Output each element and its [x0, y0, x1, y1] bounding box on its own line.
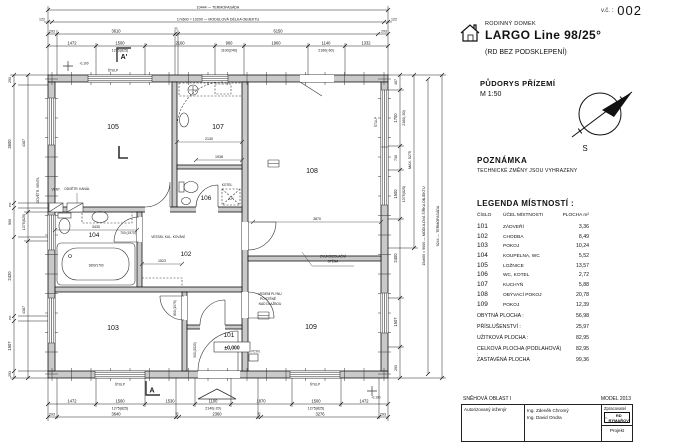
drawing-sheet: 101 102 103 104 105 106 107 108 109 ±0,0… [0, 0, 700, 445]
dim: 1375(825) [22, 214, 26, 230]
dim: 3870 [313, 217, 321, 221]
gasline-label: VEDENÍ PLYNU [258, 292, 282, 296]
chimney-mark [119, 146, 128, 158]
dim: 3600 [7, 139, 12, 149]
plan-annotations: ŠTULP ŠTULP ŠTULP ŠTULP -0,100 -0,100 A'… [35, 54, 381, 400]
note-title: POZNÁMKA [477, 156, 527, 165]
duct-label: ODVĚTR. KANÁL [64, 186, 90, 191]
room-number-105: 105 [107, 124, 119, 131]
vent-valve-label: ODVĚTR. VENTIL [35, 177, 40, 203]
legend-room-area: 12,39 [565, 302, 589, 308]
dim: 150 [8, 315, 12, 320]
dim: 1960 [271, 41, 281, 46]
total-row: OBYTNÁ PLOCHA :56,98 [477, 313, 589, 324]
dim: 2160(-50) [402, 110, 406, 126]
dim: 900 [226, 41, 234, 46]
dim: 293 [49, 413, 55, 417]
legend-rooms: 101ZÁDVEŘÍ3,36102CHODBA8,49103POKOJ10,24… [477, 223, 589, 310]
legend-row: 109POKOJ12,39 [477, 301, 589, 311]
dim: 900 (2020) [193, 342, 197, 357]
boiler-label: KOTEL [222, 183, 233, 187]
dim: 293 [8, 77, 12, 83]
dim: 9244 — TERMOFASÁDA [436, 205, 440, 246]
legend-room-number: 107 [477, 281, 503, 288]
dim: 700 (1970) [120, 231, 135, 235]
legend-row: 106WC, KOTEL2,72 [477, 271, 589, 281]
radiator-108 [268, 160, 279, 167]
stulp-label: ŠTULP [108, 68, 118, 73]
legend-room-area: 20,78 [565, 292, 589, 298]
washer-label: A.P. [228, 197, 234, 201]
soundwall-label: STĚNA [328, 259, 340, 264]
soundwall-label: ZVUKOIZOLAČNÍ [320, 254, 346, 259]
dim: 122 [391, 18, 397, 22]
dim: 1472 [67, 399, 77, 404]
dim: 2130 [205, 137, 213, 141]
engineer-1: Ing. Zdeněk Chromý [527, 407, 599, 414]
room-number-104: 104 [89, 232, 100, 239]
dim: 1332 [361, 41, 371, 46]
dim: MAX. 5275 [408, 151, 412, 169]
floor-plan-drawing: 101 102 103 104 105 106 107 108 109 ±0,0… [0, 0, 455, 445]
legend-room-area: 10,24 [565, 243, 589, 249]
subtitle: (RD BEZ PODSKLEPENÍ) [485, 49, 567, 56]
sheet-number: 002 [617, 3, 642, 18]
hardware-label: VESTAV. KUL. KOVÁNÍ [151, 235, 185, 239]
producer-house-icon: ⌂ [605, 415, 607, 420]
section-label-bottom: A [149, 388, 154, 395]
legend-room-number: 101 [477, 223, 503, 230]
room-number-107: 107 [212, 124, 224, 131]
legend-room-area: 5,52 [565, 253, 589, 259]
legend-col-purpose: ÚČEL MÍSTNOSTI [503, 213, 563, 218]
legend-room-purpose: POKOJ [503, 303, 565, 308]
gasline-label: PO STĚNĚ [260, 296, 276, 301]
legend-room-purpose: ZÁDVEŘÍ [503, 225, 565, 230]
legend-room-area: 5,88 [565, 282, 589, 288]
total-row: CELKOVÁ PLOCHA (PODLAHOVÁ) :82,95 [477, 346, 589, 357]
dim: 293 [394, 365, 398, 371]
legend-room-purpose: CHODBA [503, 235, 565, 240]
dim: 1938 [215, 155, 223, 159]
dim: 4387 [22, 139, 26, 147]
dim: 3610 [111, 29, 121, 34]
legend-row: 108OBÝVACÍ POKOJ20,78 [477, 291, 589, 301]
dim: 95 [174, 27, 178, 31]
legend-room-purpose: POKOJ [503, 244, 565, 249]
entrance-marker [198, 389, 236, 399]
dim: 122 [39, 18, 45, 22]
legend-title: LEGENDA MÍSTNOSTÍ : [477, 199, 574, 208]
dim: 150 [8, 202, 12, 207]
legend-room-number: 108 [477, 291, 503, 298]
toilet-104 [58, 213, 71, 218]
stulp-label: ŠTULP [115, 382, 125, 387]
dim: 4387 [22, 306, 26, 314]
total-value: 99,36 [563, 357, 589, 363]
legend-row: 104KOUPELNA, WC5,52 [477, 252, 589, 262]
project-label: Projekt [602, 425, 632, 433]
note-body: TECHNICKÉ ZMĚNY JSOU VYHRAZENY [477, 168, 577, 174]
dim: 1140 [322, 41, 332, 46]
dim: 293 [8, 371, 12, 377]
fixtures [49, 48, 383, 399]
drawing-scale: M 1:50 [480, 91, 501, 98]
legend-room-number: 104 [477, 252, 503, 259]
legend-room-number: 109 [477, 301, 503, 308]
section-label-top: A' [121, 54, 128, 61]
total-row: UŽITKOVÁ PLOCHA :82,95 [477, 335, 589, 346]
legend-room-number: 103 [477, 242, 503, 249]
grade-level: -0,100 [371, 396, 380, 400]
dim: 15x600 = 9000 — MODULOVÁ ŠÍŘKA OBJEKTU [421, 186, 426, 266]
washbasin-104 [92, 212, 108, 223]
dim: 17x600 = 10200 — MODULOVÁ DÉLKA OBJEKTU [177, 17, 260, 22]
dim: 1275(825) [112, 49, 128, 53]
room-number-103: 103 [107, 325, 119, 332]
drawing-title: PŮDORYS PŘÍZEMÍ [480, 79, 555, 88]
engineer-2: Ing. David Ondra [527, 414, 599, 421]
legend-room-number: 106 [477, 271, 503, 278]
legend-room-area: 13,57 [565, 263, 589, 269]
dim: 293 [49, 30, 55, 34]
dim: 10444 — TERMOFASÁDA [197, 6, 240, 10]
vent-label: VENT. [51, 188, 60, 192]
legend-totals: OBYTNÁ PLOCHA :56,98PŘÍSLUŠENSTVÍ :25,97… [477, 313, 589, 368]
dim: 293 [380, 413, 386, 417]
dim: 3276 [315, 412, 325, 417]
dim: 293 [381, 30, 387, 34]
dim: 467 [394, 79, 398, 85]
total-row: ZASTAVĚNÁ PLOCHA99,36 [477, 357, 589, 368]
stulp-label: ŠTULP [373, 117, 378, 127]
dim: 1507 [7, 341, 12, 351]
total-label: OBYTNÁ PLOCHA : [477, 313, 563, 319]
legend-col-area: PLOCHA m² [563, 213, 589, 218]
producer-cell: Zpracovatel ⌂ RD RÝMAŘOV Projekt [602, 405, 632, 441]
legend-row: 101ZÁDVEŘÍ3,36 [477, 223, 589, 233]
gasline-label: NAD DLAŽBOU [259, 301, 282, 306]
legend-row: 107KUCHYŇ5,88 [477, 281, 589, 291]
legend-row: 103POKOJ10,24 [477, 242, 589, 252]
toilet-106 [179, 182, 184, 192]
dim: 1472 [67, 41, 77, 46]
dim: 1870 [256, 399, 266, 404]
producer-label: Zpracovatel [602, 405, 632, 412]
north-label: S [582, 144, 587, 153]
stulp-label: ŠTULP [310, 382, 320, 387]
washbasin-106 [182, 198, 191, 205]
title-block: SNĚHOVÁ OBLAST I MODEL 2013 Autorizovaný… [461, 396, 633, 442]
room-number-102: 102 [181, 251, 192, 258]
dim: 2160(-60) [318, 49, 334, 53]
info-panel: v.č. : 002 RODINNÝ DOMEK LARGO Line 98/2… [455, 0, 700, 445]
engineer-label: Autorizovaný inženýr [462, 405, 525, 441]
legend-row: 102CHODBA8,49 [477, 233, 589, 243]
level-mark: ±0,000 [224, 346, 239, 352]
dim: 1530 [165, 399, 175, 404]
dim: 730 [394, 155, 398, 161]
dim: 2360 [212, 412, 222, 417]
legend-room-purpose: WC, KOTEL [503, 273, 565, 278]
total-label: PŘÍSLUŠENSTVÍ : [477, 324, 563, 330]
grade-level: -0,100 [79, 62, 88, 66]
total-value: 82,95 [563, 335, 589, 341]
legend-room-purpose: OBÝVACÍ POKOJ [503, 293, 565, 298]
dim: 1507 [393, 317, 398, 327]
sheet-number-group: v.č. : 002 [601, 3, 642, 18]
gas-label: PLYN. [252, 350, 261, 354]
dim: 1275(825) [112, 407, 128, 411]
dim: 1700 [393, 113, 398, 123]
dim: 1523 [158, 259, 166, 263]
stove [215, 84, 231, 94]
snow-area: SNĚHOVÁ OBLAST I [463, 396, 511, 402]
model-year: MODEL 2013 [601, 396, 631, 402]
producer-name: RD RÝMAŘOV [608, 413, 629, 423]
dim: 1375(825) [402, 186, 406, 202]
gas-meter [249, 354, 258, 361]
dimension-ticks [12, 8, 444, 419]
legend-room-area: 3,36 [565, 224, 589, 230]
legend-col-number: ČÍSLO [477, 213, 503, 218]
dim: 2420 [7, 271, 12, 281]
legend-header: ČÍSLO ÚČEL MÍSTNOSTI PLOCHA m² [477, 213, 589, 218]
room-number-108: 108 [306, 168, 318, 175]
dim: 2140(-20) [205, 407, 221, 411]
wardrobe [142, 278, 182, 287]
legend-room-purpose: KOUPELNA, WC [503, 254, 565, 259]
dim: 95 [257, 412, 261, 416]
dim: 1500 [115, 41, 125, 46]
building-category: RODINNÝ DOMEK [485, 21, 536, 27]
legend-room-purpose: KUCHYŇ [503, 283, 565, 288]
total-label: UŽITKOVÁ PLOCHA : [477, 335, 563, 341]
dim: 1100(240) [221, 49, 237, 53]
dim: 1500 [393, 189, 398, 199]
sheet-number-label: v.č. : [601, 8, 613, 14]
legend-room-number: 105 [477, 262, 503, 269]
total-row: PŘÍSLUŠENSTVÍ :25,97 [477, 324, 589, 335]
dim: 2400 [393, 253, 398, 263]
dim: 1275(825) [308, 407, 324, 411]
legend-row: 105LOŽNICE13,57 [477, 262, 589, 272]
legend-room-purpose: LOŽNICE [503, 264, 565, 269]
page-title: LARGO Line 98/25° [485, 28, 601, 42]
legend-room-area: 8,49 [565, 234, 589, 240]
dim: 3640 [111, 412, 121, 417]
dim: 1500 [311, 399, 321, 404]
dim: 1500 [115, 399, 125, 404]
legend-room-number: 102 [477, 233, 503, 240]
room-number-101: 101 [224, 332, 235, 339]
dim: 6150 [273, 29, 283, 34]
dim: 2160 [175, 41, 185, 46]
dim: 1100 [209, 399, 219, 404]
tub-size-label: 1800/1700 [88, 264, 103, 268]
engineers: Ing. Zdeněk Chromý Ing. David Ondra [525, 405, 602, 441]
producer-logo: ⌂ RD RÝMAŘOV [604, 412, 630, 423]
total-value: 25,97 [563, 324, 589, 330]
dim: 800 (1970) [173, 300, 177, 315]
house-logo-icon [457, 20, 483, 46]
total-value: 82,95 [563, 346, 589, 352]
room-number-109: 109 [305, 324, 317, 331]
dim: 1472 [359, 399, 369, 404]
legend-room-area: 2,72 [565, 272, 589, 278]
dim: 900 [8, 219, 12, 225]
dim: 95 [175, 412, 179, 416]
dim: 3430 [92, 225, 100, 229]
north-compass-icon: S [558, 83, 642, 157]
total-value: 56,98 [563, 313, 589, 319]
total-label: ZASTAVĚNÁ PLOCHA [477, 357, 563, 363]
room-number-106: 106 [201, 195, 212, 202]
